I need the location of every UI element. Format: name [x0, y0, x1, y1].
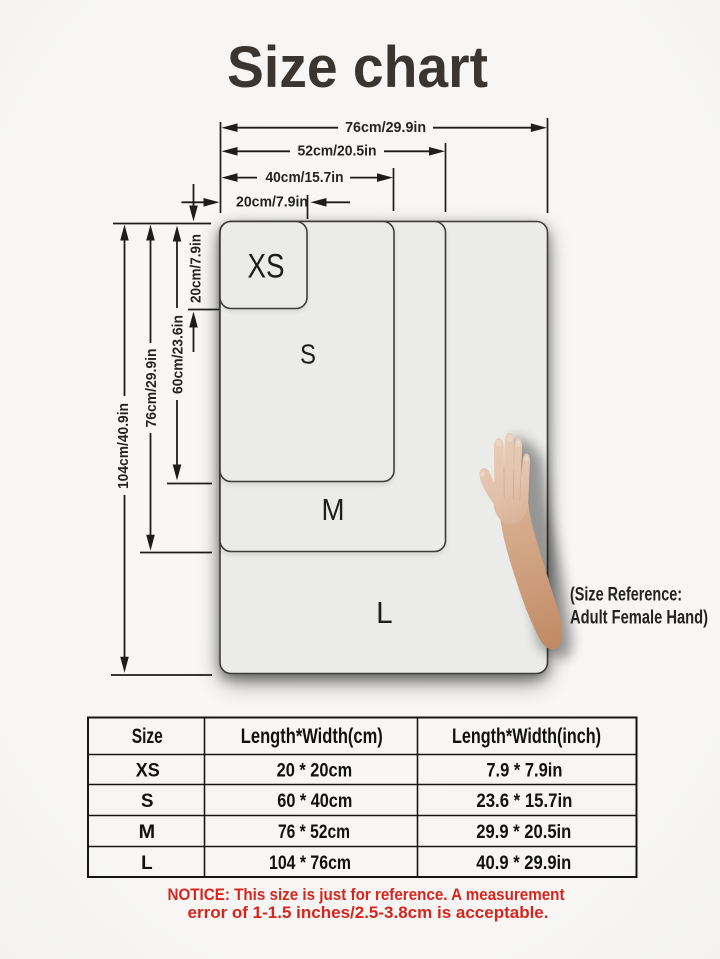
svg-text:60cm/23.6in: 60cm/23.6in [171, 315, 187, 394]
svg-text:error of 1-1.5 inches/2.5-3.8c: error of 1-1.5 inches/2.5-3.8cm is accep… [188, 904, 549, 922]
svg-text:S: S [141, 790, 154, 812]
svg-text:XS: XS [248, 248, 285, 286]
svg-text:XS: XS [136, 760, 160, 782]
svg-text:40cm/15.7in: 40cm/15.7in [266, 170, 344, 186]
svg-text:L: L [141, 852, 153, 874]
svg-text:29.9 * 20.5in: 29.9 * 20.5in [476, 821, 571, 843]
svg-text:Length*Width(inch): Length*Width(inch) [452, 725, 601, 748]
svg-text:20cm/7.9in: 20cm/7.9in [236, 195, 308, 211]
svg-text:23.6 * 15.7in: 23.6 * 15.7in [476, 790, 572, 812]
svg-text:7.9 * 7.9in: 7.9 * 7.9in [486, 760, 562, 782]
svg-text:M: M [139, 821, 156, 843]
svg-text:L: L [376, 596, 393, 630]
svg-text:(Size Reference:: (Size Reference: [570, 585, 682, 606]
svg-text:104cm/40.9in: 104cm/40.9in [116, 403, 132, 489]
svg-text:M: M [322, 492, 345, 527]
svg-text:S: S [300, 338, 316, 369]
svg-text:76cm/29.9in: 76cm/29.9in [345, 120, 426, 136]
svg-text:Adult Female Hand): Adult Female Hand) [570, 608, 708, 629]
svg-text:20 * 20cm: 20 * 20cm [277, 760, 353, 782]
svg-text:52cm/20.5in: 52cm/20.5in [298, 144, 377, 160]
svg-text:76 * 52cm: 76 * 52cm [278, 821, 350, 843]
svg-text:Size: Size [132, 725, 163, 748]
svg-text:104 * 76cm: 104 * 76cm [269, 852, 351, 874]
svg-text:40.9 * 29.9in: 40.9 * 29.9in [476, 852, 571, 874]
svg-text:60 * 40cm: 60 * 40cm [277, 790, 352, 812]
svg-text:Size chart: Size chart [227, 35, 488, 100]
svg-text:NOTICE: This size is just for: NOTICE: This size is just for reference.… [168, 886, 565, 904]
svg-text:76cm/29.9in: 76cm/29.9in [144, 349, 160, 428]
svg-text:Length*Width(cm): Length*Width(cm) [241, 725, 383, 748]
svg-text:20cm/7.9in: 20cm/7.9in [189, 234, 205, 303]
